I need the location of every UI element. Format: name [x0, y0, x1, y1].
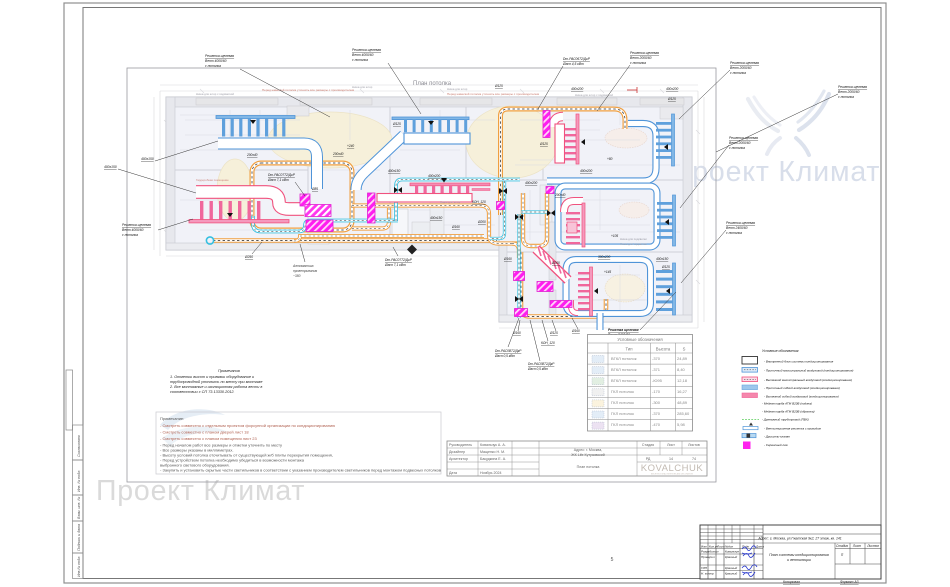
svg-text:48,89: 48,89 [677, 400, 688, 405]
svg-text:Вент 2400/60: Вент 2400/60 [726, 226, 748, 230]
svg-text:Бакудкина Е. А.: Бакудкина Е. А. [480, 457, 506, 461]
svg-text:РД: РД [646, 457, 651, 461]
svg-text:S: S [683, 347, 686, 352]
svg-text:Dm-РАС0672/ДкР: Dm-РАС0672/ДкР [563, 57, 591, 61]
svg-text:Ниша для штор: Ниша для штор [447, 87, 468, 91]
svg-text:Условные обозначения: Условные обозначения [617, 337, 662, 342]
svg-text:Ø160: Ø160 [451, 225, 460, 229]
svg-text:Автоматика: Автоматика [292, 264, 314, 268]
svg-text:Ø125: Ø125 [494, 84, 503, 88]
svg-text:74: 74 [692, 457, 696, 461]
svg-text:Адрес: г. Москва, ул.Гжатская: Адрес: г. Москва, ул.Гжатская 9к2, 27 эт… [757, 537, 841, 541]
svg-text:- Внутренний блок системы кон: - Внутренний блок системы кондиционирова… [764, 360, 834, 364]
svg-text:ВГКЛ потолок: ВГКЛ потолок [611, 356, 637, 361]
svg-text:с потолка: с потолка [205, 64, 221, 68]
svg-text:Øасп 7,1 кВт: Øасп 7,1 кВт [267, 178, 289, 182]
svg-text:285,60: 285,60 [677, 411, 690, 416]
svg-text:200x40: 200x40 [554, 193, 566, 197]
svg-text:ГИП: ГИП [701, 566, 708, 570]
svg-text:400x150: 400x150 [388, 169, 400, 173]
svg-text:План потолка: План потолка [413, 81, 452, 87]
svg-text:Вент 2000/60: Вент 2000/60 [729, 141, 751, 145]
svg-text:400x200: 400x200 [571, 87, 583, 91]
svg-text:Dm-РАС0772/ДкР: Dm-РАС0772/ДкР [385, 258, 413, 262]
svg-text:с потолка: с потолка [726, 231, 742, 235]
svg-text:- Вентиляционная решетка с пр: - Вентиляционная решетка с приводом [764, 427, 821, 431]
svg-text:Вент 4000/60: Вент 4000/60 [122, 228, 144, 232]
svg-text:с потолка: с потолка [630, 61, 646, 65]
svg-text:ВГКЛ потолок: ВГКЛ потолок [611, 367, 637, 372]
svg-text:Стадия: Стадия [836, 544, 848, 548]
svg-text:1. Отметки высот и привязки об: 1. Отметки высот и привязки оборудование… [170, 375, 255, 379]
svg-text:Дата: Дата [755, 545, 764, 549]
svg-text:Решетка щелевая: Решетка щелевая [608, 328, 639, 332]
svg-text:400x200: 400x200 [525, 181, 537, 185]
svg-text:-300: -300 [652, 400, 661, 405]
svg-text:Ковальчук А. А.: Ковальчук А. А. [480, 443, 506, 447]
svg-text:Решетка щелевая: Решетка щелевая [730, 61, 759, 65]
svg-text:ЖК Life Кутузовский: ЖК Life Кутузовский [571, 453, 604, 457]
svg-text:Решетка щелевая: Решетка щелевая [352, 48, 381, 52]
svg-text:5: 5 [611, 557, 614, 563]
svg-text:- Вытяжной гибкий воздуховод: - Вытяжной гибкий воздуховод (кондициони… [764, 395, 839, 399]
svg-text:ГКЛ потолок: ГКЛ потолок [611, 411, 634, 416]
svg-text:14: 14 [669, 457, 673, 461]
svg-text:- Дренажный трубопровод (ПВХ): - Дренажный трубопровод (ПВХ) [762, 418, 809, 422]
svg-text:Ниша для штор с подсветкой: Ниша для штор с подсветкой [196, 92, 234, 96]
svg-text:- Медная труба АТМ В20В (обрат: - Медная труба АТМ В20В (обратка) [762, 410, 815, 414]
svg-text:Øасп 4,5 кВт: Øасп 4,5 кВт [562, 62, 584, 66]
svg-text:- Медная труба АТМ В20В (подач: - Медная труба АТМ В20В (подача) [762, 402, 812, 406]
svg-text:Решетка щелевая: Решетка щелевая [630, 51, 659, 55]
svg-text:Ø200: Ø200 [551, 261, 560, 265]
svg-text:Ø125: Ø125 [667, 97, 676, 101]
svg-text:-170: -170 [652, 389, 661, 394]
svg-text:Гардеробная помещение: Гардеробная помещение [196, 178, 229, 182]
svg-text:400x150: 400x150 [656, 257, 668, 261]
svg-text:+240: +240 [347, 144, 354, 148]
svg-text:400x150: 400x150 [104, 165, 117, 169]
svg-text:8,40: 8,40 [677, 367, 686, 372]
svg-text:16,27: 16,27 [677, 389, 688, 394]
svg-text:400x200: 400x200 [580, 169, 592, 173]
svg-text:- Дроссель-клапан: - Дроссель-клапан [764, 435, 790, 439]
svg-text:Руководитель: Руководитель [449, 443, 472, 447]
svg-text:-370: -370 [652, 411, 661, 416]
svg-text:Проект Климат: Проект Климат [671, 156, 880, 188]
svg-text:Ø125: Ø125 [539, 142, 548, 146]
svg-text:Ковальчук: Ковальчук [725, 550, 740, 554]
svg-text:План системы кондиционирования: План системы кондиционирования [769, 553, 829, 557]
svg-text:Листов: Листов [688, 443, 700, 447]
svg-text:№док: №док [725, 545, 734, 549]
svg-text:Решетка щелевая: Решетка щелевая [729, 136, 758, 140]
svg-text:Подпись и дата: Подпись и дата [77, 524, 81, 551]
svg-text:Инв.№ подл.: Инв.№ подл. [77, 556, 81, 577]
svg-text:Ø160: Ø160 [503, 257, 512, 261]
svg-text:трубопроводной уточнить по мес: трубопроводной уточнить по месту при мон… [170, 380, 262, 384]
svg-text:2. Все монтажные и изоляционна: 2. Все монтажные и изоляционная работа в… [169, 385, 262, 389]
svg-text:Решетка щелевая: Решетка щелевая [838, 85, 867, 89]
svg-text:+80: +80 [607, 157, 613, 161]
svg-text:проветривания: проветривания [293, 269, 317, 273]
svg-text:КОН_120: КОН_120 [541, 341, 555, 345]
svg-text:Адрес: г. Москва,: Адрес: г. Москва, [574, 448, 602, 452]
svg-text:Изм: Изм [701, 545, 707, 549]
svg-text:Инв. № подл.: Инв. № подл. [77, 470, 81, 492]
svg-text:Лист: Лист [852, 544, 862, 548]
svg-text:Решетка щелевая: Решетка щелевая [122, 223, 151, 227]
svg-text:Высота: Высота [656, 347, 671, 352]
svg-text:Проверил: Проверил [701, 555, 715, 559]
svg-text:Условные обозначения: Условные обозначения [762, 349, 799, 353]
svg-text:Н. контр: Н. контр [701, 572, 714, 576]
svg-text:Вент 2000/60: Вент 2000/60 [730, 66, 752, 70]
svg-text:Ø125: Ø125 [661, 265, 670, 269]
svg-text:с потолка: с потолка [730, 71, 746, 75]
svg-text:-371: -371 [652, 367, 661, 372]
svg-text:Ниша для подсветки: Ниша для подсветки [620, 242, 647, 246]
svg-text:Формат А3: Формат А3 [840, 580, 859, 584]
svg-text:и вентиляции: и вентиляции [787, 558, 811, 562]
svg-text:Мащенко Н. М.: Мащенко Н. М. [480, 450, 505, 454]
svg-text:Вент 4000/60: Вент 4000/60 [205, 59, 227, 63]
svg-text:Примечания: Примечания [218, 369, 240, 373]
svg-text:Ø250: Ø250 [244, 255, 253, 259]
svg-text:ARCHITECTURAL INTERIORS AND: ARCHITECTURAL INTERIORS AND DECORATION [651, 473, 694, 476]
svg-text:Красный: Красный [725, 572, 737, 576]
svg-text:с потолка: с потолка [122, 233, 138, 237]
svg-text:Перед навеской потолка уточнит: Перед навеской потолка уточнить все разм… [262, 88, 354, 92]
svg-text:400x150: 400x150 [141, 157, 154, 161]
svg-text:- Смотреть совместно с отдельн: - Смотреть совместно с отдельным проекто… [160, 423, 335, 428]
svg-text:ГКЛ потолок: ГКЛ потолок [611, 422, 634, 427]
svg-text:Лист: Лист [667, 443, 675, 447]
svg-text:Ø85: Ø85 [311, 187, 318, 191]
svg-text:Копировал: Копировал [783, 580, 800, 584]
svg-text:~380: ~380 [293, 274, 301, 278]
svg-text:с потолка: с потолка [838, 95, 854, 99]
svg-text:200x40: 200x40 [332, 152, 344, 156]
svg-text:КОН_120: КОН_120 [472, 200, 486, 204]
svg-text:Ø125: Ø125 [392, 122, 401, 126]
svg-text:Дата: Дата [449, 471, 457, 475]
svg-text:Красный: Красный [725, 566, 737, 570]
svg-text:Разработал: Разработал [701, 550, 719, 554]
svg-text:ГКЛ потолок: ГКЛ потолок [611, 389, 634, 394]
svg-text:Архитектор: Архитектор [449, 457, 468, 461]
svg-text:Вент 4000/60: Вент 4000/60 [352, 53, 374, 57]
svg-text:Ниша для подсветки: Ниша для подсветки [620, 237, 647, 241]
svg-text:KOVALCHUK: KOVALCHUK [641, 463, 704, 474]
svg-text:Ниша для штор: Ниша для штор [440, 200, 461, 204]
svg-text:- Вытяжной магистральный возд: - Вытяжной магистральный воздуховод (кон… [764, 378, 852, 382]
svg-text:Тип: Тип [626, 347, 633, 352]
svg-text:400x150: 400x150 [430, 216, 442, 220]
svg-text:12,18: 12,18 [677, 378, 688, 383]
svg-text:Øасп 0,5 кВт: Øасп 0,5 кВт [494, 354, 515, 358]
svg-text:300x200: 300x200 [598, 255, 610, 259]
svg-text:- Смотреть совместно с планом: - Смотреть совместно с планом помещения … [160, 436, 258, 441]
svg-text:-Ю95: -Ю95 [652, 378, 663, 383]
svg-text:- Сервисный люк: - Сервисный люк [764, 443, 788, 447]
svg-text:400x200: 400x200 [428, 174, 440, 178]
svg-text:5,98: 5,98 [677, 422, 686, 427]
svg-text:с потолка: с потолка [729, 146, 745, 150]
svg-text:- Закупить и установить скрыты: - Закупить и установить скрытые части св… [160, 468, 441, 473]
svg-text:200x40: 200x40 [246, 153, 258, 157]
svg-text:400x200: 400x200 [666, 87, 678, 91]
svg-text:Ноябрь 2024: Ноябрь 2024 [480, 471, 501, 475]
svg-text:Ø160: Ø160 [571, 329, 580, 333]
svg-text:ВГКЛ потолок: ВГКЛ потолок [611, 378, 637, 383]
svg-text:Листов: Листов [866, 544, 879, 548]
svg-text:Решетка щелевая: Решетка щелевая [726, 221, 755, 225]
svg-text:Dm-РАС0В72/ДкР: Dm-РАС0В72/ДкР [528, 362, 555, 366]
svg-text:ГКЛ потолок: ГКЛ потолок [611, 400, 634, 405]
svg-text:Dm-РАС0В72/ДкР: Dm-РАС0В72/ДкР [495, 349, 522, 353]
svg-text:Стадия: Стадия [642, 443, 654, 447]
svg-text:- Приточный магистральный воз: - Приточный магистральный воздуховод (ко… [764, 369, 853, 373]
svg-text:-470: -470 [652, 422, 661, 427]
svg-text:- Приточный гибкий воздуховод: - Приточный гибкий воздуховод (кондицион… [764, 386, 840, 390]
svg-text:Вент 2000/60: Вент 2000/60 [838, 90, 860, 94]
svg-text:Взам. инв. №: Взам. инв. № [77, 497, 81, 519]
svg-text:План потолка: План потолка [577, 465, 600, 469]
svg-text:Øасп 0,5 кВт: Øасп 0,5 кВт [527, 367, 548, 371]
svg-text:Ø125: Ø125 [549, 331, 558, 335]
svg-text:Перед навеской потолка уточнит: Перед навеской потолка уточнить все разм… [447, 92, 539, 96]
svg-text:+105: +105 [611, 234, 618, 238]
svg-text:Ниша для штор: Ниша для штор [352, 85, 373, 89]
svg-text:Дизайнер: Дизайнер [449, 450, 465, 454]
svg-text:соответствии с СП 73.13330.201: соответствии с СП 73.13330.2012. [170, 390, 235, 394]
svg-text:Вент 2000/60: Вент 2000/60 [630, 56, 652, 60]
svg-text:Ø200: Ø200 [477, 220, 486, 224]
svg-text:Красный: Красный [725, 555, 737, 559]
svg-text:Примечание:: Примечание: [160, 416, 184, 421]
svg-text:- Смотреть совместно с планом: - Смотреть совместно с планом дверей лис… [160, 430, 249, 435]
svg-text:Согласовано: Согласовано [77, 435, 81, 457]
svg-text:Решетка щелевая: Решетка щелевая [205, 54, 234, 58]
svg-text:с потолка: с потолка [352, 58, 368, 62]
svg-text:24,89: 24,89 [677, 356, 688, 361]
svg-text:Øасп 7,1 кВт: Øасп 7,1 кВт [384, 263, 406, 267]
svg-text:Dm-РАС0772/ДкР: Dm-РАС0772/ДкР [268, 173, 296, 177]
svg-text:Лист: Лист [716, 545, 725, 549]
svg-text:+145: +145 [604, 270, 611, 274]
svg-text:-370: -370 [652, 356, 661, 361]
